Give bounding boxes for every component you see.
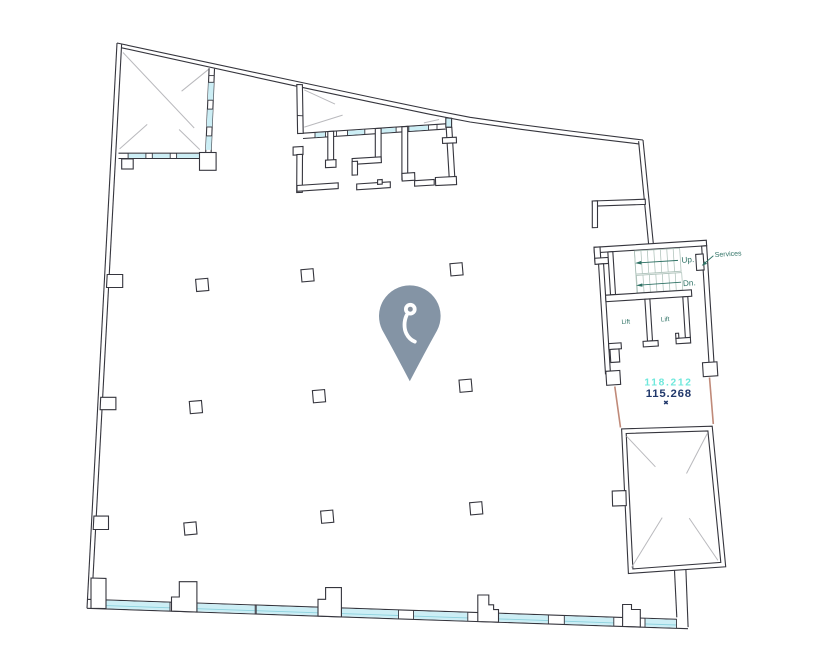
svg-text:Dn.: Dn. xyxy=(683,278,696,288)
svg-text:Lift: Lift xyxy=(621,318,630,326)
svg-text:115.268: 115.268 xyxy=(646,388,692,400)
svg-text:Up.: Up. xyxy=(681,255,694,265)
svg-text:Lift: Lift xyxy=(661,316,670,324)
